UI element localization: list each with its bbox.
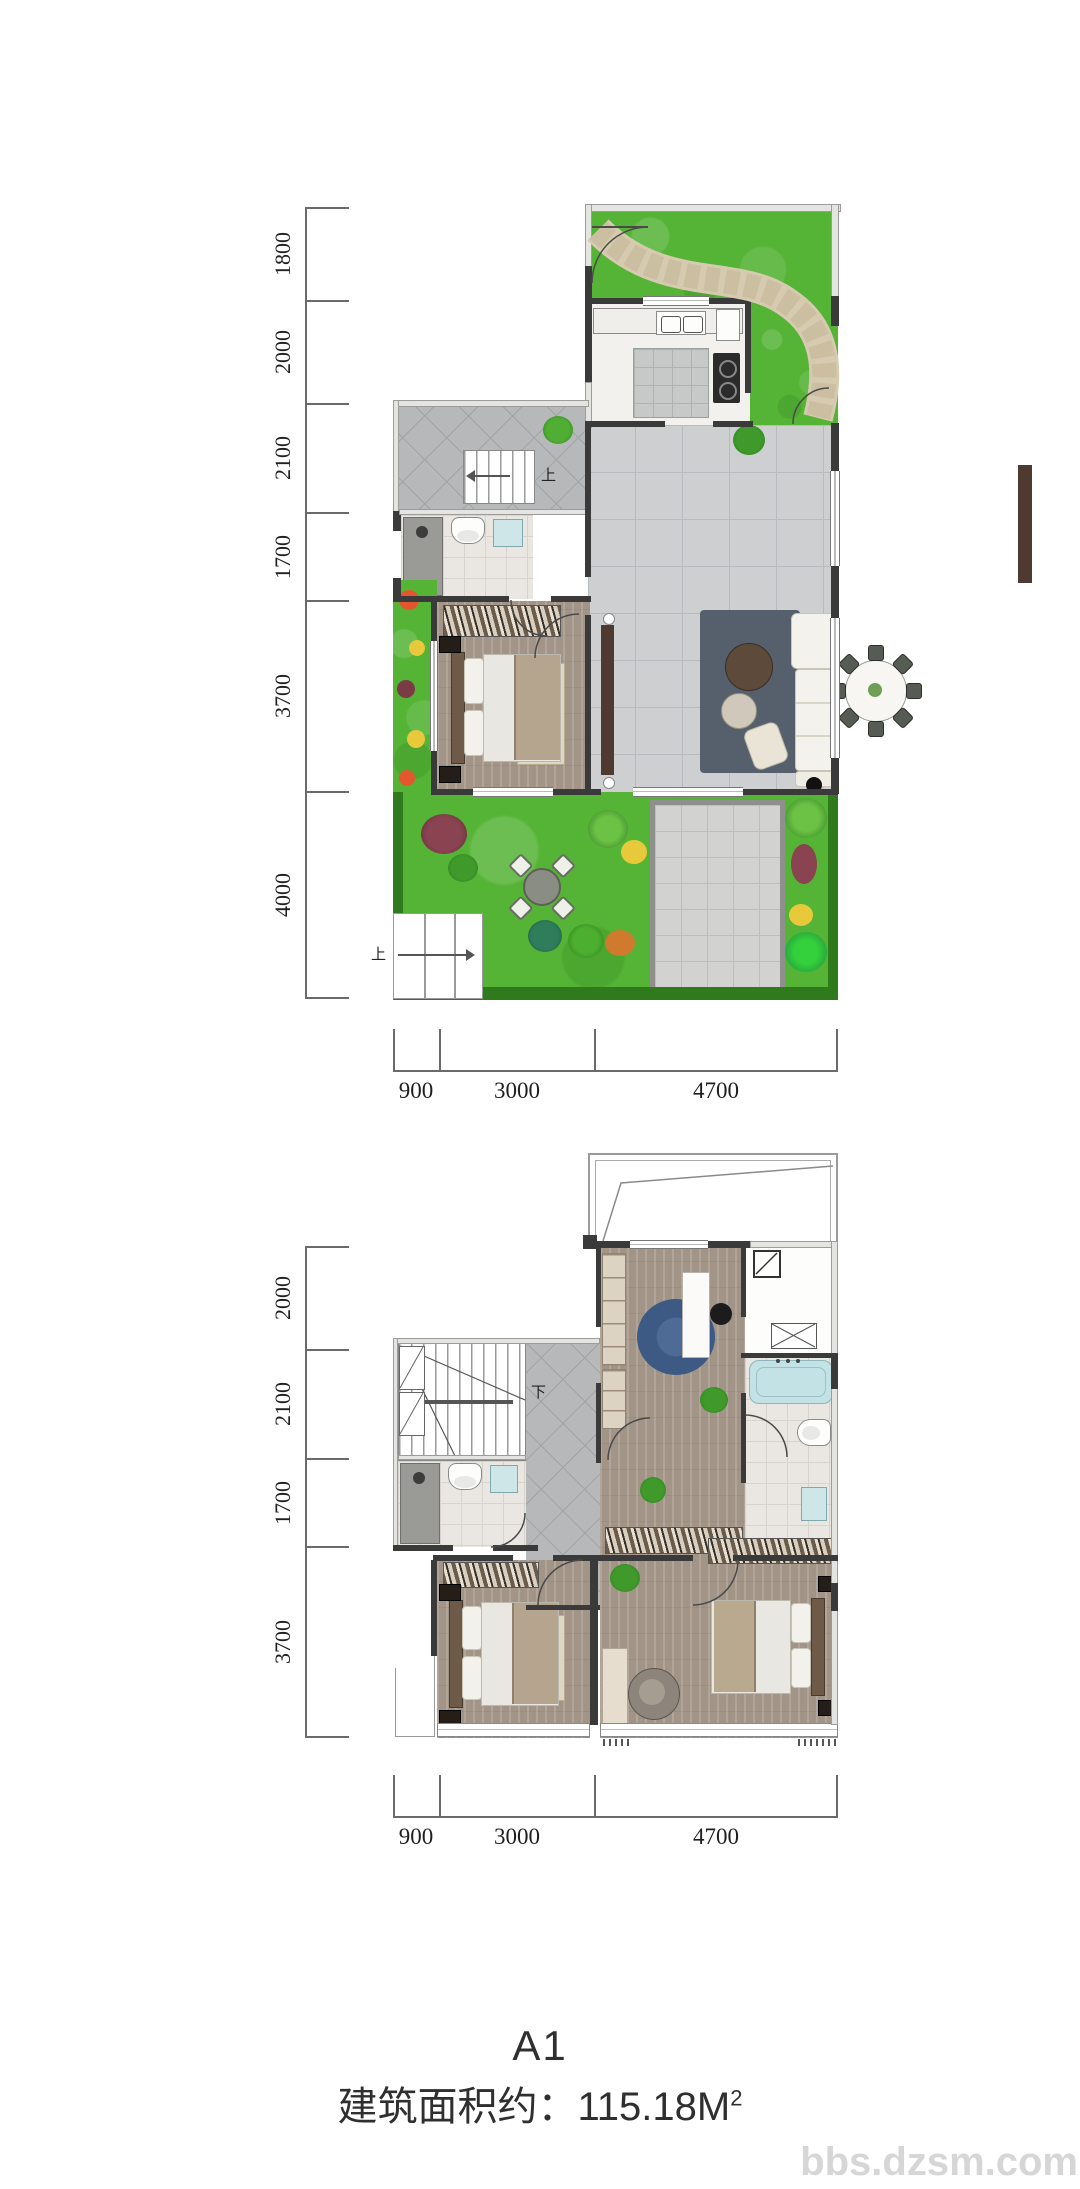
area-text: 建筑面积约：115.18M	[338, 2085, 731, 2129]
centerpiece-plant-icon	[868, 683, 882, 697]
dim-label: 3000	[482, 1824, 552, 1850]
dim-label: 900	[381, 1078, 451, 1104]
roof-slope-line	[603, 1166, 833, 1241]
dim-label: 2000	[271, 1268, 295, 1328]
second-floor-plan: 下	[393, 1153, 838, 1755]
dim-label: 4000	[271, 865, 295, 925]
dim-label: 3000	[482, 1078, 552, 1104]
floor2-overlay	[393, 1153, 838, 1755]
sideboard	[1018, 465, 1032, 583]
dining-chair	[868, 721, 884, 737]
dining-table-set	[835, 650, 915, 730]
right-bedroom-door-arc	[693, 1560, 738, 1605]
left-bedroom-door-arc	[538, 1560, 583, 1605]
dining-chair	[868, 645, 884, 661]
left-bathroom-door-arc	[491, 1513, 525, 1547]
plan-code: A1	[0, 2022, 1080, 2070]
watermark: bbs.dzsm.com	[800, 2140, 1078, 2185]
dim-label: 2000	[271, 322, 295, 382]
right-bathroom-door-arc	[745, 1415, 787, 1457]
dim-label: 2100	[271, 1374, 295, 1434]
title-block: A1 建筑面积约：115.18M2	[0, 2022, 1080, 2132]
dim-label: 4700	[681, 1078, 751, 1104]
area-line: 建筑面积约：115.18M2	[0, 2074, 1080, 2132]
dining-chair	[906, 683, 922, 699]
study-door-arc	[608, 1418, 650, 1460]
garden-stair-up-label: 上	[371, 943, 386, 964]
bathroom-door-arc	[511, 600, 547, 636]
dim-label: 1700	[271, 527, 295, 587]
dim-label: 2100	[271, 428, 295, 488]
dim-label: 3700	[271, 1612, 295, 1672]
dim-label: 900	[381, 1824, 451, 1850]
first-floor-plan: 上	[393, 208, 838, 1000]
dim-label: 1800	[271, 224, 295, 284]
area-superscript: 2	[730, 2086, 742, 2111]
dim-label: 3700	[271, 666, 295, 726]
floor-plan-sheet: 1800 2000 2100 1700 3700 4000 900 3000 4…	[0, 0, 1080, 2189]
dim-label: 4700	[681, 1824, 751, 1850]
floor1-overlay	[393, 208, 838, 1000]
dim-label: 1700	[271, 1473, 295, 1533]
